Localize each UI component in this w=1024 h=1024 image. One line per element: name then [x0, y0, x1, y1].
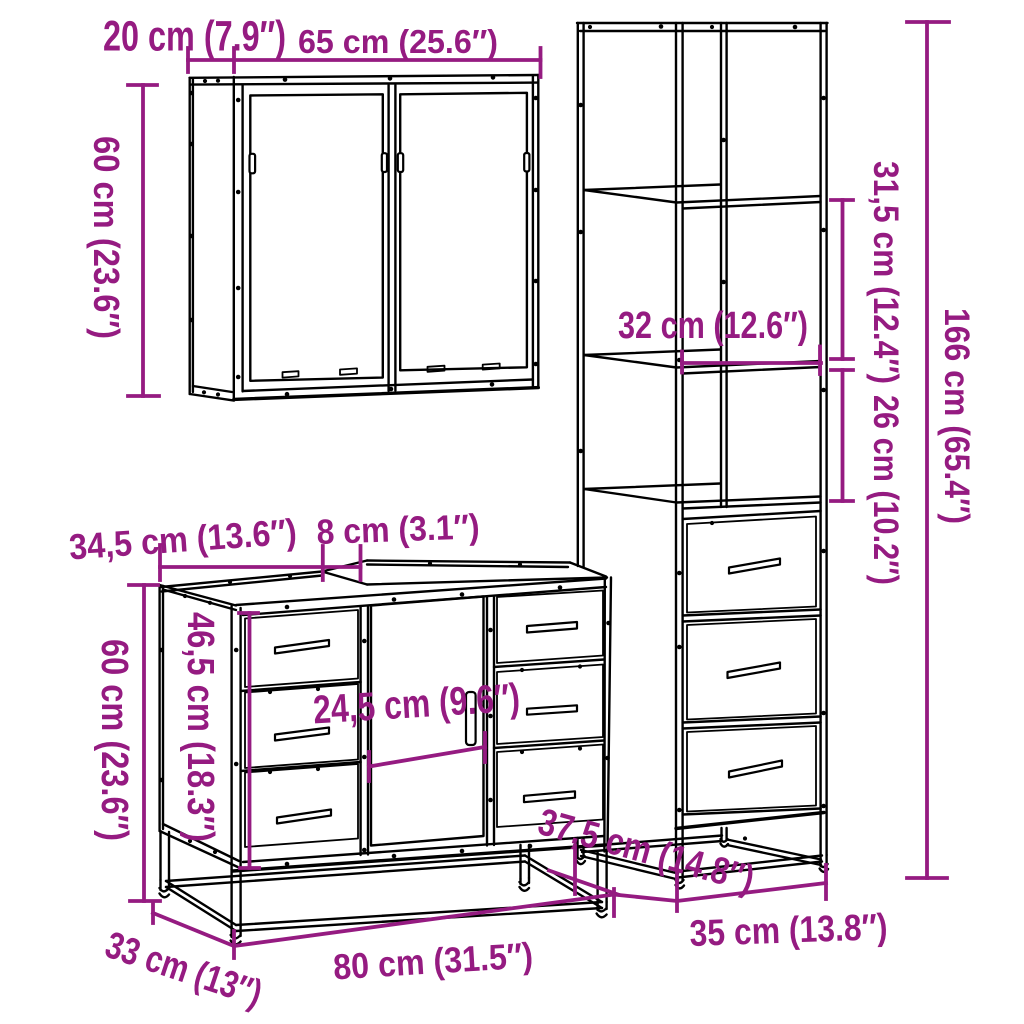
svg-text:60 cm (23.6″): 60 cm (23.6″) — [93, 639, 135, 841]
svg-text:46,5 cm (18.3″): 46,5 cm (18.3″) — [179, 612, 221, 842]
svg-text:31,5 cm (12.4″): 31,5 cm (12.4″) — [866, 161, 905, 384]
svg-text:26 cm (10.2″): 26 cm (10.2″) — [866, 395, 905, 585]
svg-text:60 cm (23.6″): 60 cm (23.6″) — [86, 136, 127, 339]
svg-text:166 cm (65.4″): 166 cm (65.4″) — [937, 308, 976, 524]
svg-text:35 cm (13.8″): 35 cm (13.8″) — [689, 906, 888, 954]
svg-text:20 cm (7.9″): 20 cm (7.9″) — [103, 13, 286, 61]
svg-text:8 cm (3.1″): 8 cm (3.1″) — [316, 507, 480, 552]
svg-text:65 cm (25.6″): 65 cm (25.6″) — [298, 23, 498, 60]
svg-text:32 cm (12.6″): 32 cm (12.6″) — [618, 305, 808, 347]
